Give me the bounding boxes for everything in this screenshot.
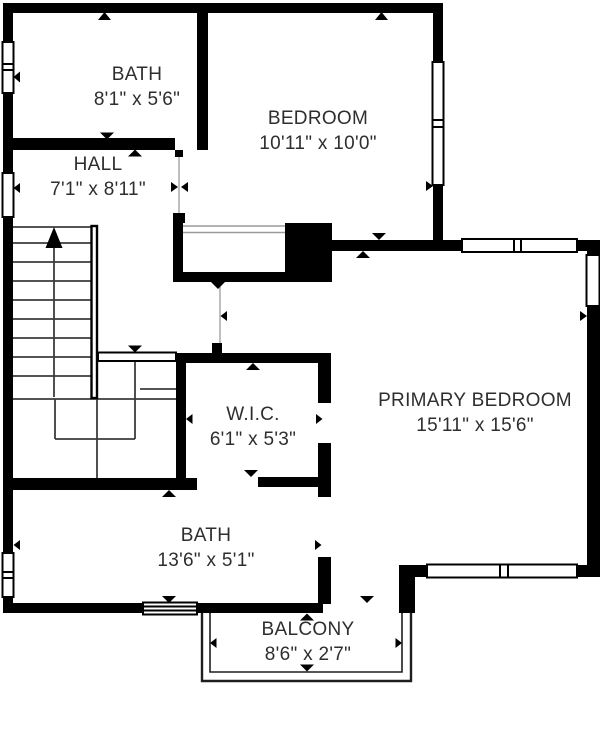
opening-marker-icon xyxy=(246,363,260,370)
window xyxy=(3,173,14,217)
wall xyxy=(577,240,600,251)
wall xyxy=(285,223,332,282)
room-label-wic: W.I.C. 6'1" x 5'3" xyxy=(210,402,296,452)
opening-marker-icon xyxy=(14,540,21,550)
opening-marker-icon xyxy=(372,233,386,240)
opening-marker-icon xyxy=(171,182,178,192)
opening-marker-icon xyxy=(360,596,374,603)
room-label-bedroom: BEDROOM 10'11" x 10'0" xyxy=(259,106,377,156)
opening-marker-icon xyxy=(128,346,142,353)
wall xyxy=(587,306,600,577)
room-name: W.I.C. xyxy=(210,402,296,427)
wall xyxy=(175,150,183,157)
stair-up-arrow-icon xyxy=(46,227,63,248)
room-label-hall: HALL 7'1" x 8'11" xyxy=(50,152,146,202)
opening-marker-icon xyxy=(98,12,111,20)
staircase xyxy=(13,226,176,478)
opening-marker-icon xyxy=(396,638,403,648)
opening-marker-icon xyxy=(315,540,322,550)
floor-plan: BATH 8'1" x 5'6" HALL 7'1" x 8'11" BEDRO… xyxy=(0,0,600,753)
opening-marker-icon xyxy=(221,311,228,321)
room-dimensions: 15'11" x 15'6" xyxy=(378,413,572,438)
opening-marker-icon xyxy=(580,311,587,321)
opening-marker-icon xyxy=(356,251,370,258)
room-name: HALL xyxy=(50,152,146,177)
wall xyxy=(13,138,175,150)
window xyxy=(462,239,577,252)
window xyxy=(143,603,197,615)
room-name: BALCONY xyxy=(262,617,355,642)
opening-marker-icon xyxy=(186,414,193,424)
room-dimensions: 6'1" x 5'3" xyxy=(210,427,296,452)
room-dimensions: 8'1" x 5'6" xyxy=(94,87,180,112)
wall xyxy=(176,353,186,484)
wall xyxy=(212,343,222,353)
room-label-primary-bedroom: PRIMARY BEDROOM 15'11" x 15'6" xyxy=(378,388,572,438)
opening-marker-icon xyxy=(316,414,323,424)
wall xyxy=(415,565,427,577)
room-name: BEDROOM xyxy=(259,106,377,131)
wall xyxy=(13,478,197,490)
closet-door-lines xyxy=(183,226,285,233)
wall xyxy=(3,217,13,553)
window xyxy=(3,553,14,597)
window xyxy=(587,255,600,306)
wall xyxy=(197,603,323,613)
room-name: PRIMARY BEDROOM xyxy=(378,388,572,413)
room-name: BATH xyxy=(94,62,180,87)
wall xyxy=(3,3,443,13)
room-dimensions: 7'1" x 8'11" xyxy=(50,177,146,202)
wall xyxy=(318,557,331,604)
room-label-bath-upper: BATH 8'1" x 5'6" xyxy=(94,62,180,112)
opening-marker-icon xyxy=(181,182,188,192)
room-dimensions: 13'6" x 5'1" xyxy=(157,548,254,573)
wall xyxy=(197,13,208,150)
opening-marker-icon xyxy=(211,282,225,289)
wall xyxy=(399,565,415,613)
window xyxy=(433,62,444,185)
window xyxy=(3,42,14,93)
opening-marker-icon xyxy=(244,470,258,477)
room-dimensions: 8'6" x 2'7" xyxy=(262,642,355,667)
room-label-balcony: BALCONY 8'6" x 2'7" xyxy=(262,617,355,667)
wall xyxy=(318,443,331,497)
room-name: BATH xyxy=(157,523,254,548)
stair-landing-edge xyxy=(98,353,176,362)
wall xyxy=(433,185,443,251)
wall xyxy=(318,353,331,403)
room-dimensions: 10'11" x 10'0" xyxy=(259,131,377,156)
opening-marker-icon xyxy=(375,12,388,20)
wall xyxy=(3,93,13,173)
opening-marker-icon xyxy=(162,490,176,497)
wall xyxy=(176,353,331,363)
room-label-bath-lower: BATH 13'6" x 5'1" xyxy=(157,523,254,573)
wall xyxy=(433,3,443,62)
window xyxy=(427,565,577,578)
wall xyxy=(3,603,143,613)
stair-railing xyxy=(92,226,98,398)
wall xyxy=(3,3,13,42)
opening-marker-icon xyxy=(210,638,217,648)
wall xyxy=(173,213,183,282)
